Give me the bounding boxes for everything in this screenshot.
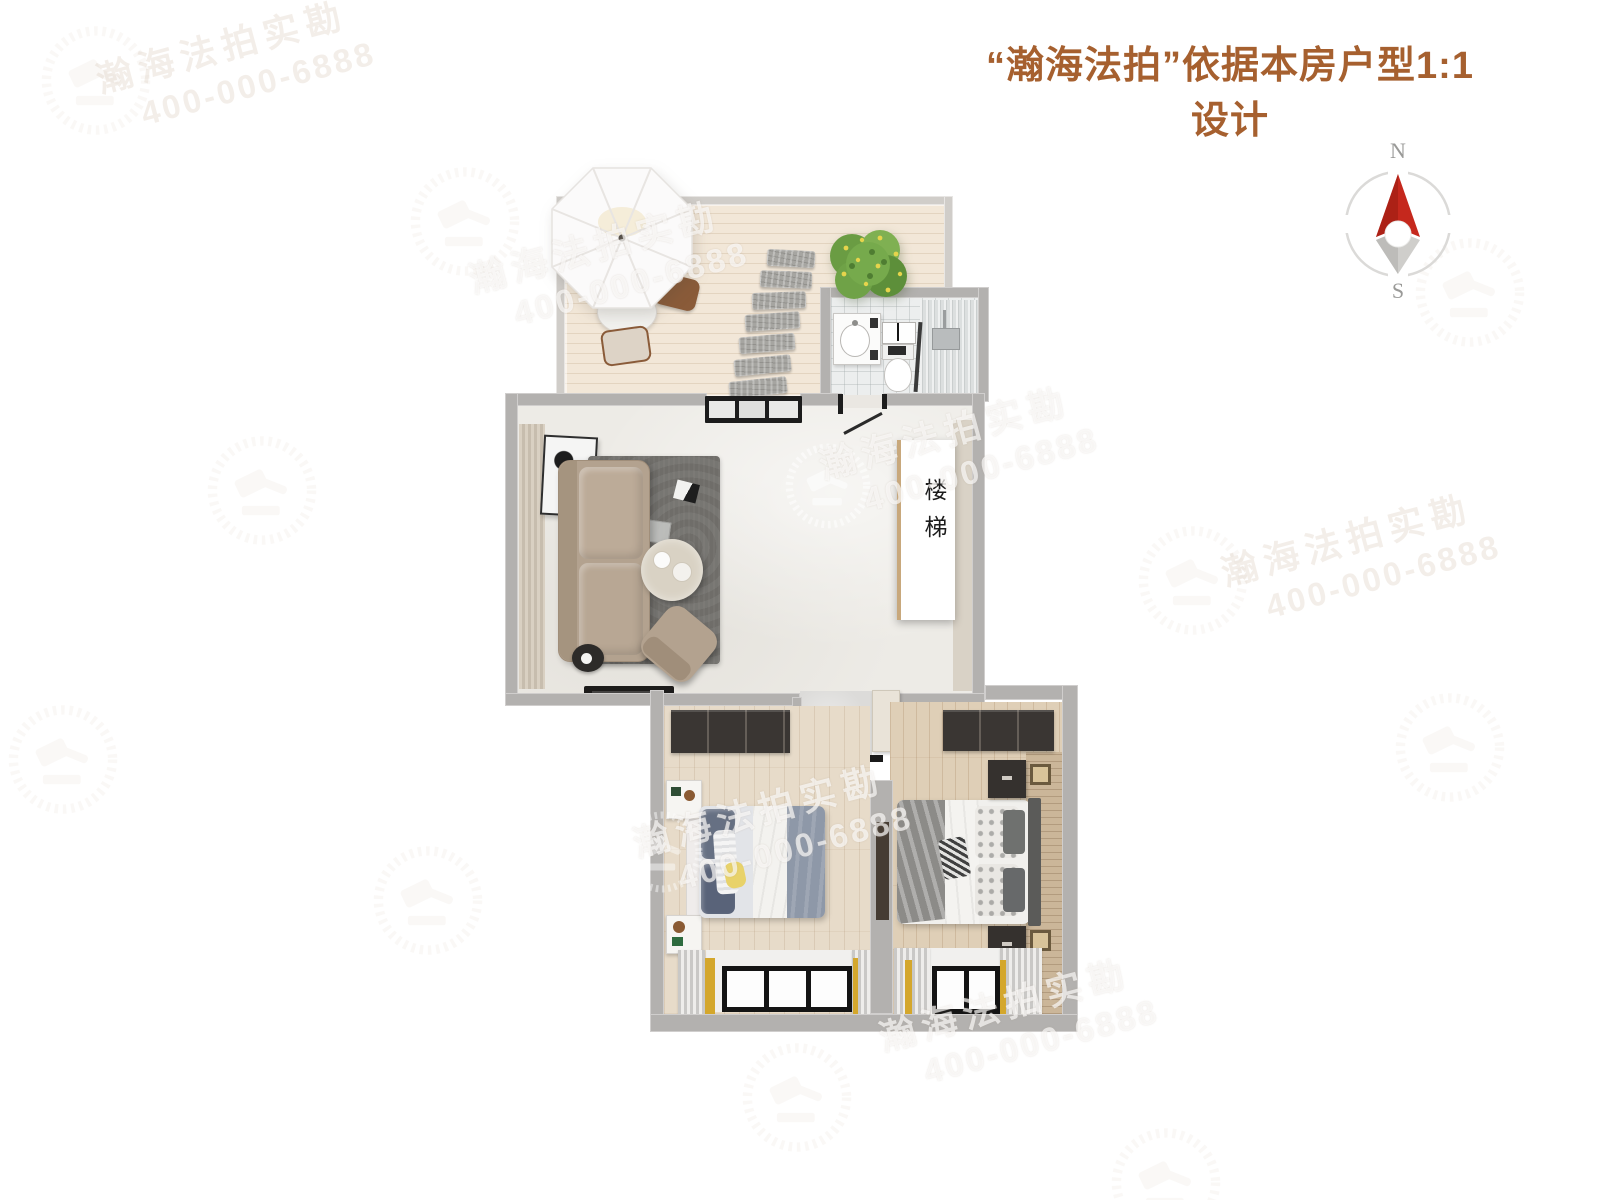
sofa-cushion: [579, 563, 643, 655]
lamp: [1030, 764, 1051, 785]
mirror-cabinet: [882, 322, 916, 344]
toiletry-item: [870, 350, 878, 360]
door-pane: [739, 401, 765, 418]
door-jamb: [882, 394, 887, 409]
pillow: [1003, 810, 1025, 854]
wall: [944, 196, 953, 293]
cup: [653, 551, 671, 569]
sofa: [558, 460, 650, 662]
wall: [800, 393, 842, 406]
wardrobe: [943, 710, 1054, 751]
curtain: [678, 950, 705, 1014]
window-mullion: [806, 971, 811, 1007]
curtain-accent: [853, 958, 858, 1014]
bathroom-door-opening: [842, 395, 884, 408]
floorplan-page: 瀚海法拍实勘400-000-6888 瀚海法拍实勘400-000-6888: [0, 0, 1600, 1200]
wardrobe: [671, 710, 790, 753]
toilet-bowl: [884, 358, 912, 392]
sofa-back: [559, 461, 577, 661]
watermark-logo: [203, 432, 321, 555]
curtain: [519, 424, 545, 689]
decor-item: [673, 921, 685, 933]
faucet: [852, 320, 858, 326]
door-pane: [769, 401, 798, 418]
terrace-door: [705, 396, 802, 423]
pillow: [1003, 868, 1025, 912]
shower-head: [932, 328, 960, 350]
coffee-table: [641, 539, 703, 601]
window-mullion: [764, 971, 769, 1007]
watermark-logo: [1107, 1124, 1225, 1200]
watermark-logo: [738, 1039, 856, 1162]
wall: [505, 393, 518, 706]
mirror-cabinet-divider: [897, 323, 899, 341]
side-table: [572, 644, 604, 672]
shower-pipe: [943, 310, 946, 328]
toiletry-item: [870, 318, 878, 328]
watermark-logo: [1391, 689, 1509, 812]
wall: [978, 287, 989, 402]
page-title: “瀚海法拍”依据本房户型1:1设计: [972, 34, 1488, 144]
sofa-cushion: [579, 467, 643, 559]
wall: [505, 393, 707, 406]
patio-chair: [600, 325, 653, 367]
window: [722, 966, 852, 1012]
door-pane: [709, 401, 735, 418]
nightstand: [666, 915, 702, 954]
stepping-stone: [760, 270, 813, 289]
stepping-stone: [752, 291, 807, 310]
toilet-lid-panel: [888, 346, 906, 355]
books: [671, 787, 681, 796]
watermark-logo: [4, 701, 122, 824]
bed: [897, 800, 1030, 924]
bowl: [672, 562, 692, 582]
compass-north-label: N: [1378, 138, 1418, 164]
drawer-handle: [1002, 776, 1012, 780]
watermark-logo: [369, 842, 487, 965]
curtain-accent: [705, 958, 715, 1014]
decor-ball: [581, 653, 592, 664]
watermark-text: 瀚海法拍实勘400-000-6888: [1215, 475, 1505, 635]
stepping-stone: [767, 249, 816, 268]
bed-headboard: [1028, 798, 1041, 926]
compass-south-label: S: [1378, 278, 1418, 304]
door-jamb: [838, 394, 843, 414]
books: [672, 937, 683, 946]
plant: [822, 226, 914, 306]
nightstand: [988, 760, 1026, 798]
bathroom-sink: [840, 324, 870, 357]
drawer-handle: [1002, 942, 1012, 946]
